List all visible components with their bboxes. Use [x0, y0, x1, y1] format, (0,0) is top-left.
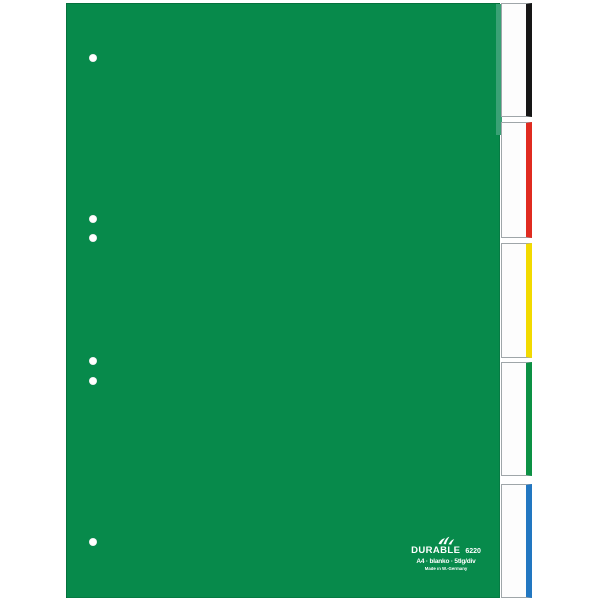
punch-hole — [89, 234, 97, 242]
index-tab-red — [501, 122, 532, 238]
origin-line: Made in W.-Germany — [409, 567, 484, 571]
product-spec-line: A4 · blanko · 5tlg/div — [394, 559, 498, 566]
index-tab-yellow — [501, 243, 532, 358]
punch-hole — [89, 357, 97, 365]
product-photo: DURABLE 6220 A4 · blanko · 5tlg/div Made… — [0, 0, 600, 600]
brand-name: DURABLE — [411, 546, 460, 556]
punch-hole — [89, 215, 97, 223]
punch-hole — [89, 377, 97, 385]
index-tab-black — [501, 3, 532, 117]
durable-logo-icon — [437, 536, 455, 545]
punch-hole — [89, 54, 97, 62]
model-number: 6220 — [465, 548, 481, 556]
divider-sheet — [66, 3, 500, 598]
index-tab-green — [501, 362, 532, 476]
index-tab-blue — [501, 484, 532, 598]
branding-block: DURABLE 6220 A4 · blanko · 5tlg/div Made… — [394, 536, 498, 573]
punch-hole — [89, 538, 97, 546]
brand-row: DURABLE 6220 — [394, 546, 498, 556]
